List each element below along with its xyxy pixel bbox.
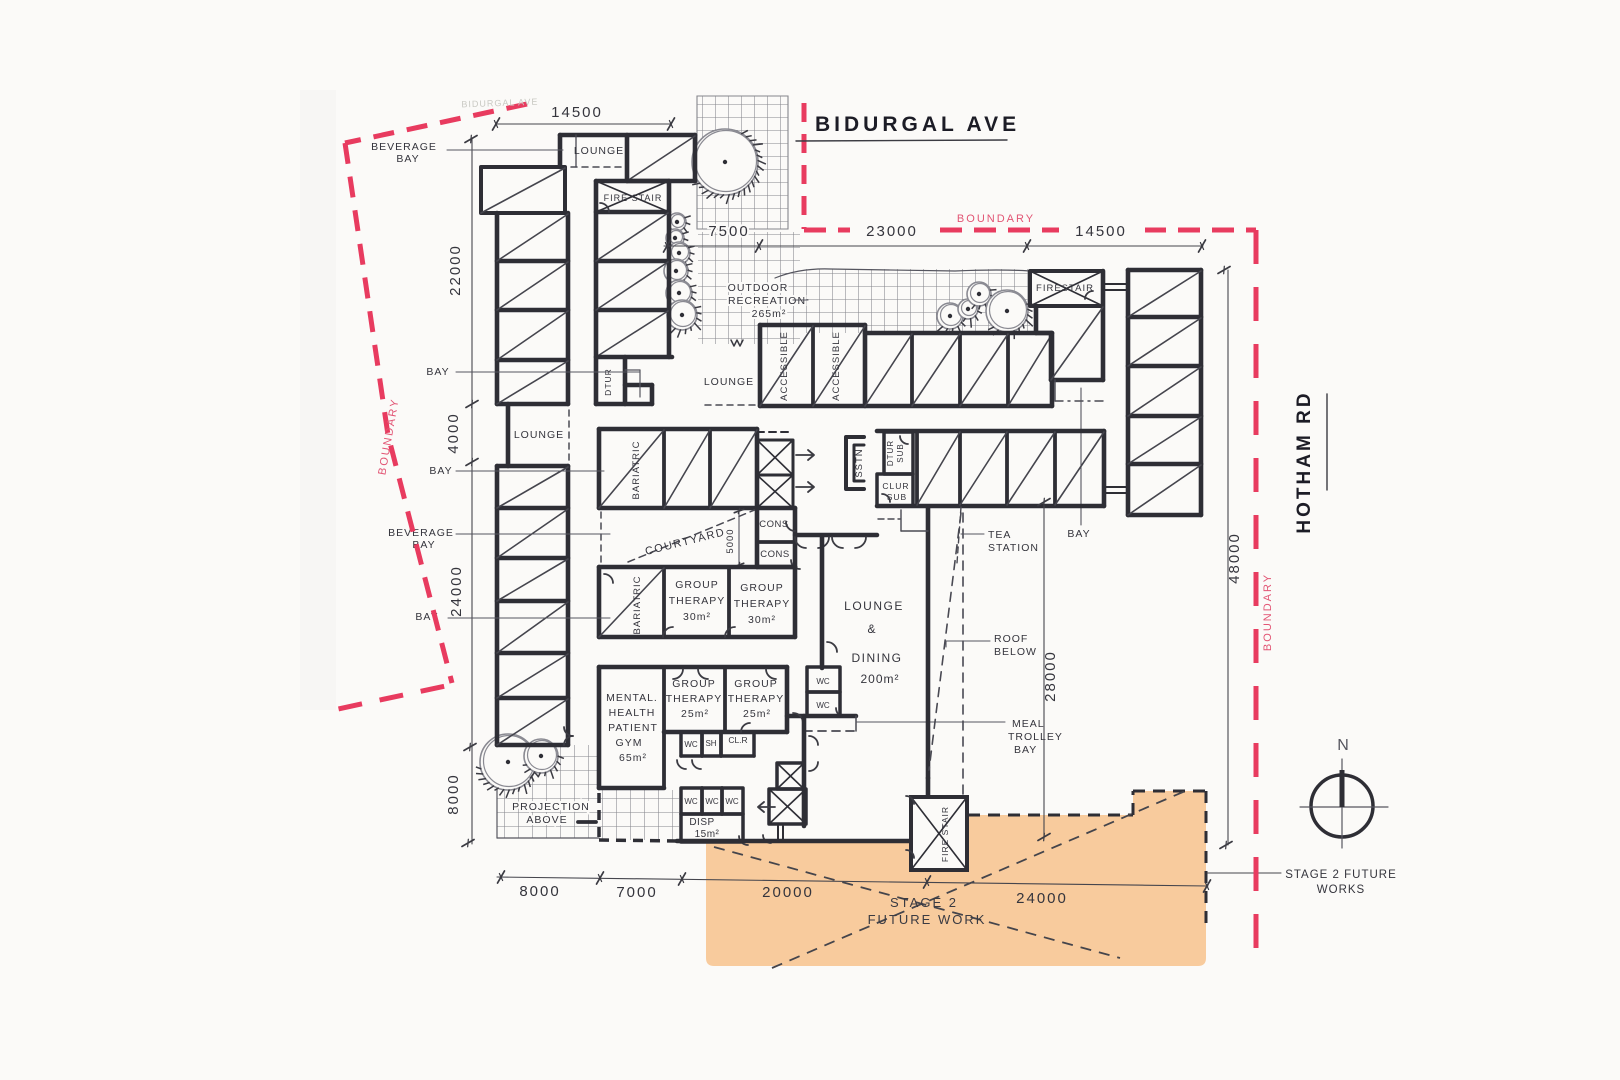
svg-text:THERAPY: THERAPY bbox=[669, 595, 726, 607]
svg-text:7500: 7500 bbox=[708, 223, 749, 240]
svg-text:LOUNGE: LOUNGE bbox=[574, 145, 624, 157]
svg-text:BARIATRIC: BARIATRIC bbox=[632, 576, 643, 635]
svg-text:8000: 8000 bbox=[445, 773, 462, 814]
svg-text:GROUP: GROUP bbox=[740, 582, 784, 594]
svg-text:25m²: 25m² bbox=[743, 708, 771, 720]
svg-text:WC: WC bbox=[816, 701, 830, 710]
svg-text:200m²: 200m² bbox=[860, 672, 899, 686]
svg-text:24000: 24000 bbox=[448, 565, 465, 617]
svg-text:ABOVE: ABOVE bbox=[526, 814, 567, 826]
svg-text:LOUNGE: LOUNGE bbox=[704, 376, 754, 388]
svg-text:BEVERAGE: BEVERAGE bbox=[371, 141, 437, 153]
svg-text:8000: 8000 bbox=[519, 883, 560, 900]
svg-text:STAGE 2 FUTURE: STAGE 2 FUTURE bbox=[1285, 869, 1397, 881]
svg-text:14500: 14500 bbox=[1075, 223, 1127, 240]
svg-text:CL.R: CL.R bbox=[728, 735, 747, 745]
svg-text:4000: 4000 bbox=[445, 412, 462, 453]
svg-text:WORKS: WORKS bbox=[1317, 884, 1365, 896]
svg-text:WC: WC bbox=[705, 797, 719, 806]
svg-text:RECREATION: RECREATION bbox=[728, 295, 806, 307]
svg-text:BIDURGAL AVE: BIDURGAL AVE bbox=[815, 113, 1020, 136]
svg-text:&: & bbox=[867, 622, 876, 636]
svg-text:MENTAL.: MENTAL. bbox=[606, 692, 658, 704]
svg-text:BAY: BAY bbox=[1067, 528, 1090, 540]
svg-text:GROUP: GROUP bbox=[734, 678, 778, 690]
svg-text:STATION: STATION bbox=[988, 542, 1039, 554]
svg-text:LOUNGE: LOUNGE bbox=[514, 429, 564, 441]
svg-text:30m²: 30m² bbox=[748, 614, 776, 626]
svg-text:BAY: BAY bbox=[396, 153, 419, 165]
svg-text:HOTHAM RD: HOTHAM RD bbox=[1294, 390, 1315, 533]
svg-text:SSTN: SSTN bbox=[854, 448, 865, 477]
svg-text:14500: 14500 bbox=[551, 104, 603, 121]
svg-text:THERAPY: THERAPY bbox=[728, 693, 785, 705]
svg-text:FIRE STAIR: FIRE STAIR bbox=[604, 193, 663, 203]
svg-text:CLUR: CLUR bbox=[882, 481, 909, 491]
svg-text:24000: 24000 bbox=[1016, 890, 1068, 907]
svg-text:DTUR: DTUR bbox=[886, 440, 895, 466]
svg-text:WC: WC bbox=[725, 797, 739, 806]
svg-text:PATIENT: PATIENT bbox=[608, 722, 658, 734]
svg-text:SH: SH bbox=[705, 739, 716, 748]
svg-text:23000: 23000 bbox=[866, 223, 918, 240]
svg-text:BOUNDARY: BOUNDARY bbox=[1262, 573, 1274, 651]
svg-text:FIRE STAIR: FIRE STAIR bbox=[940, 806, 950, 862]
svg-text:ROOF: ROOF bbox=[994, 633, 1028, 645]
svg-text:SUB: SUB bbox=[896, 443, 905, 462]
svg-text:BARIATRIC: BARIATRIC bbox=[631, 441, 642, 500]
svg-text:20000: 20000 bbox=[762, 884, 814, 901]
svg-text:N: N bbox=[1337, 737, 1349, 754]
svg-text:HEALTH: HEALTH bbox=[609, 707, 656, 719]
svg-text:THERAPY: THERAPY bbox=[734, 598, 791, 610]
svg-text:ACCESSIBLE: ACCESSIBLE bbox=[831, 331, 842, 401]
svg-text:TROLLEY: TROLLEY bbox=[1008, 731, 1063, 743]
svg-text:BOUNDARY: BOUNDARY bbox=[957, 213, 1035, 225]
svg-text:GYM: GYM bbox=[616, 737, 643, 749]
svg-text:MEAL: MEAL bbox=[1012, 718, 1045, 730]
svg-text:22000: 22000 bbox=[447, 244, 464, 296]
svg-text:LOUNGE: LOUNGE bbox=[844, 599, 904, 613]
svg-text:GROUP: GROUP bbox=[675, 579, 719, 591]
svg-text:GROUP: GROUP bbox=[672, 678, 716, 690]
svg-text:BAY: BAY bbox=[429, 465, 452, 477]
svg-text:BEVERAGE: BEVERAGE bbox=[388, 527, 454, 539]
svg-text:WC: WC bbox=[684, 740, 698, 749]
svg-text:DISP: DISP bbox=[689, 817, 714, 828]
svg-text:BAY: BAY bbox=[426, 366, 449, 378]
svg-text:CONS: CONS bbox=[760, 549, 789, 560]
svg-text:OUTDOOR: OUTDOOR bbox=[728, 282, 789, 294]
svg-text:5000: 5000 bbox=[725, 528, 736, 553]
svg-text:STAGE 2: STAGE 2 bbox=[890, 895, 958, 910]
svg-text:DINING: DINING bbox=[852, 651, 903, 665]
svg-text:FIRESTAIR: FIRESTAIR bbox=[1036, 283, 1094, 294]
svg-text:265m²: 265m² bbox=[752, 308, 787, 320]
svg-text:48000: 48000 bbox=[1226, 532, 1243, 584]
svg-text:FUTURE WORK: FUTURE WORK bbox=[868, 912, 987, 927]
svg-text:WC: WC bbox=[684, 797, 698, 806]
svg-text:25m²: 25m² bbox=[681, 708, 709, 720]
svg-text:BAY: BAY bbox=[1014, 744, 1037, 756]
svg-text:THERAPY: THERAPY bbox=[666, 693, 723, 705]
svg-text:CONS: CONS bbox=[759, 519, 788, 530]
svg-text:30m²: 30m² bbox=[683, 611, 711, 623]
svg-text:WC: WC bbox=[816, 677, 830, 686]
svg-text:65m²: 65m² bbox=[619, 752, 647, 764]
svg-text:7000: 7000 bbox=[616, 884, 657, 901]
svg-text:ACCESSIBLE: ACCESSIBLE bbox=[779, 331, 790, 401]
svg-text:TEA: TEA bbox=[988, 529, 1011, 541]
svg-text:15m²: 15m² bbox=[695, 829, 720, 840]
svg-text:PROJECTION: PROJECTION bbox=[512, 801, 590, 813]
svg-text:28000: 28000 bbox=[1042, 650, 1059, 702]
svg-text:BELOW: BELOW bbox=[994, 646, 1037, 658]
